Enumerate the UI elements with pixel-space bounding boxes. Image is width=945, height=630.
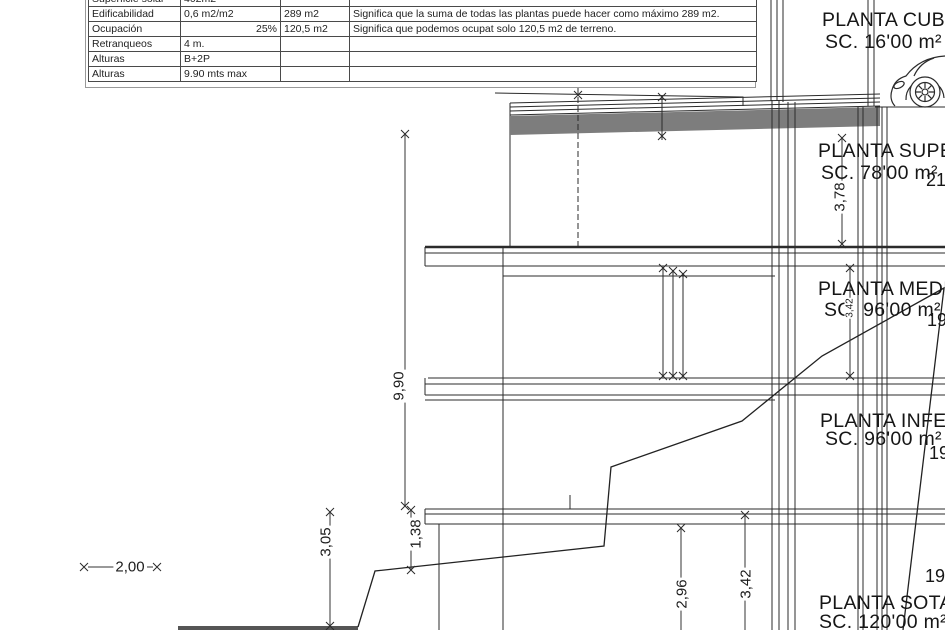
roof-slab bbox=[510, 94, 945, 135]
roof-slab-fill bbox=[510, 107, 880, 135]
table-cell: Significa que podemos ocupat solo 120,5 … bbox=[350, 22, 757, 37]
table-cell: 120,5 m2 bbox=[281, 22, 350, 37]
floor-label-cubierta: PLANTA CUBIERTA bbox=[822, 9, 945, 32]
table-cell: Significa que la suma de todas las plant… bbox=[350, 7, 757, 22]
dimension-lines bbox=[88, 134, 850, 630]
table-cell bbox=[281, 52, 350, 67]
floor-area-inferior: SC. 96'00 m² bbox=[825, 428, 942, 451]
dim-media-floor: 3,42 bbox=[845, 297, 856, 318]
building-section-canvas bbox=[0, 0, 945, 630]
zoning-table: Superficie solar 402m2 Edificabilidad 0,… bbox=[88, 0, 757, 82]
dim-step: 1,38 bbox=[408, 517, 425, 550]
table-row: Alturas B+2P bbox=[89, 52, 757, 67]
floor-label-superior: PLANTA SUPERIOR bbox=[818, 140, 945, 163]
level-value: 19 bbox=[929, 443, 945, 464]
terrain-line bbox=[358, 288, 944, 630]
interior-walls bbox=[439, 135, 570, 630]
dimension-ticks bbox=[80, 91, 854, 630]
floor-area-cubierta: SC. 16'00 m² bbox=[825, 31, 942, 54]
dim-basement-a: 2,96 bbox=[674, 577, 691, 610]
stair-dim-lines bbox=[663, 267, 683, 377]
dim-setback: 2,00 bbox=[113, 559, 146, 576]
table-row: Retranqueos 4 m. bbox=[89, 37, 757, 52]
table-row: Alturas 9.90 mts max bbox=[89, 67, 757, 82]
table-cell: Alturas bbox=[89, 67, 181, 82]
floor-area-media: SC. 96'00 m² bbox=[824, 299, 941, 322]
table-cell bbox=[350, 52, 757, 67]
dim-total-height: 9,90 bbox=[391, 369, 408, 402]
table-cell: 25% bbox=[181, 22, 281, 37]
level-value: 19 bbox=[925, 566, 945, 587]
table-cell bbox=[281, 67, 350, 82]
terrain-profile bbox=[178, 288, 944, 630]
headlight-icon bbox=[893, 80, 906, 90]
car-icon bbox=[891, 56, 945, 107]
table-cell: Alturas bbox=[89, 52, 181, 67]
section-drawing-page: Superficie solar 402m2 Edificabilidad 0,… bbox=[0, 0, 945, 630]
table-cell: 4 m. bbox=[181, 37, 281, 52]
level-value: 19 bbox=[927, 310, 945, 331]
table-row: Edificabilidad 0,6 m2/m2 289 m2 Signific… bbox=[89, 7, 757, 22]
table-cell: Edificabilidad bbox=[89, 7, 181, 22]
table-cell: 289 m2 bbox=[281, 7, 350, 22]
table-row: Ocupación 25% 120,5 m2 Significa que pod… bbox=[89, 22, 757, 37]
floor-area-sotano: SC. 120'00 m² bbox=[819, 611, 945, 630]
dim-basement-b: 3,42 bbox=[738, 567, 755, 600]
floor-label-media: PLANTA MEDIA bbox=[818, 278, 945, 301]
wheel-icon bbox=[910, 77, 940, 107]
table-cell: 9.90 mts max bbox=[181, 67, 281, 82]
dim-left-terrain: 3,05 bbox=[318, 525, 335, 558]
table-cell bbox=[350, 37, 757, 52]
level-value: 21 bbox=[926, 170, 945, 191]
table-cell: 0,6 m2/m2 bbox=[181, 7, 281, 22]
dim-roof-floor: 3,78 bbox=[832, 180, 849, 213]
table-cell: Retranqueos bbox=[89, 37, 181, 52]
table-cell bbox=[281, 37, 350, 52]
table-cell: B+2P bbox=[181, 52, 281, 67]
table-cell: Ocupación bbox=[89, 22, 181, 37]
table-cell bbox=[350, 67, 757, 82]
